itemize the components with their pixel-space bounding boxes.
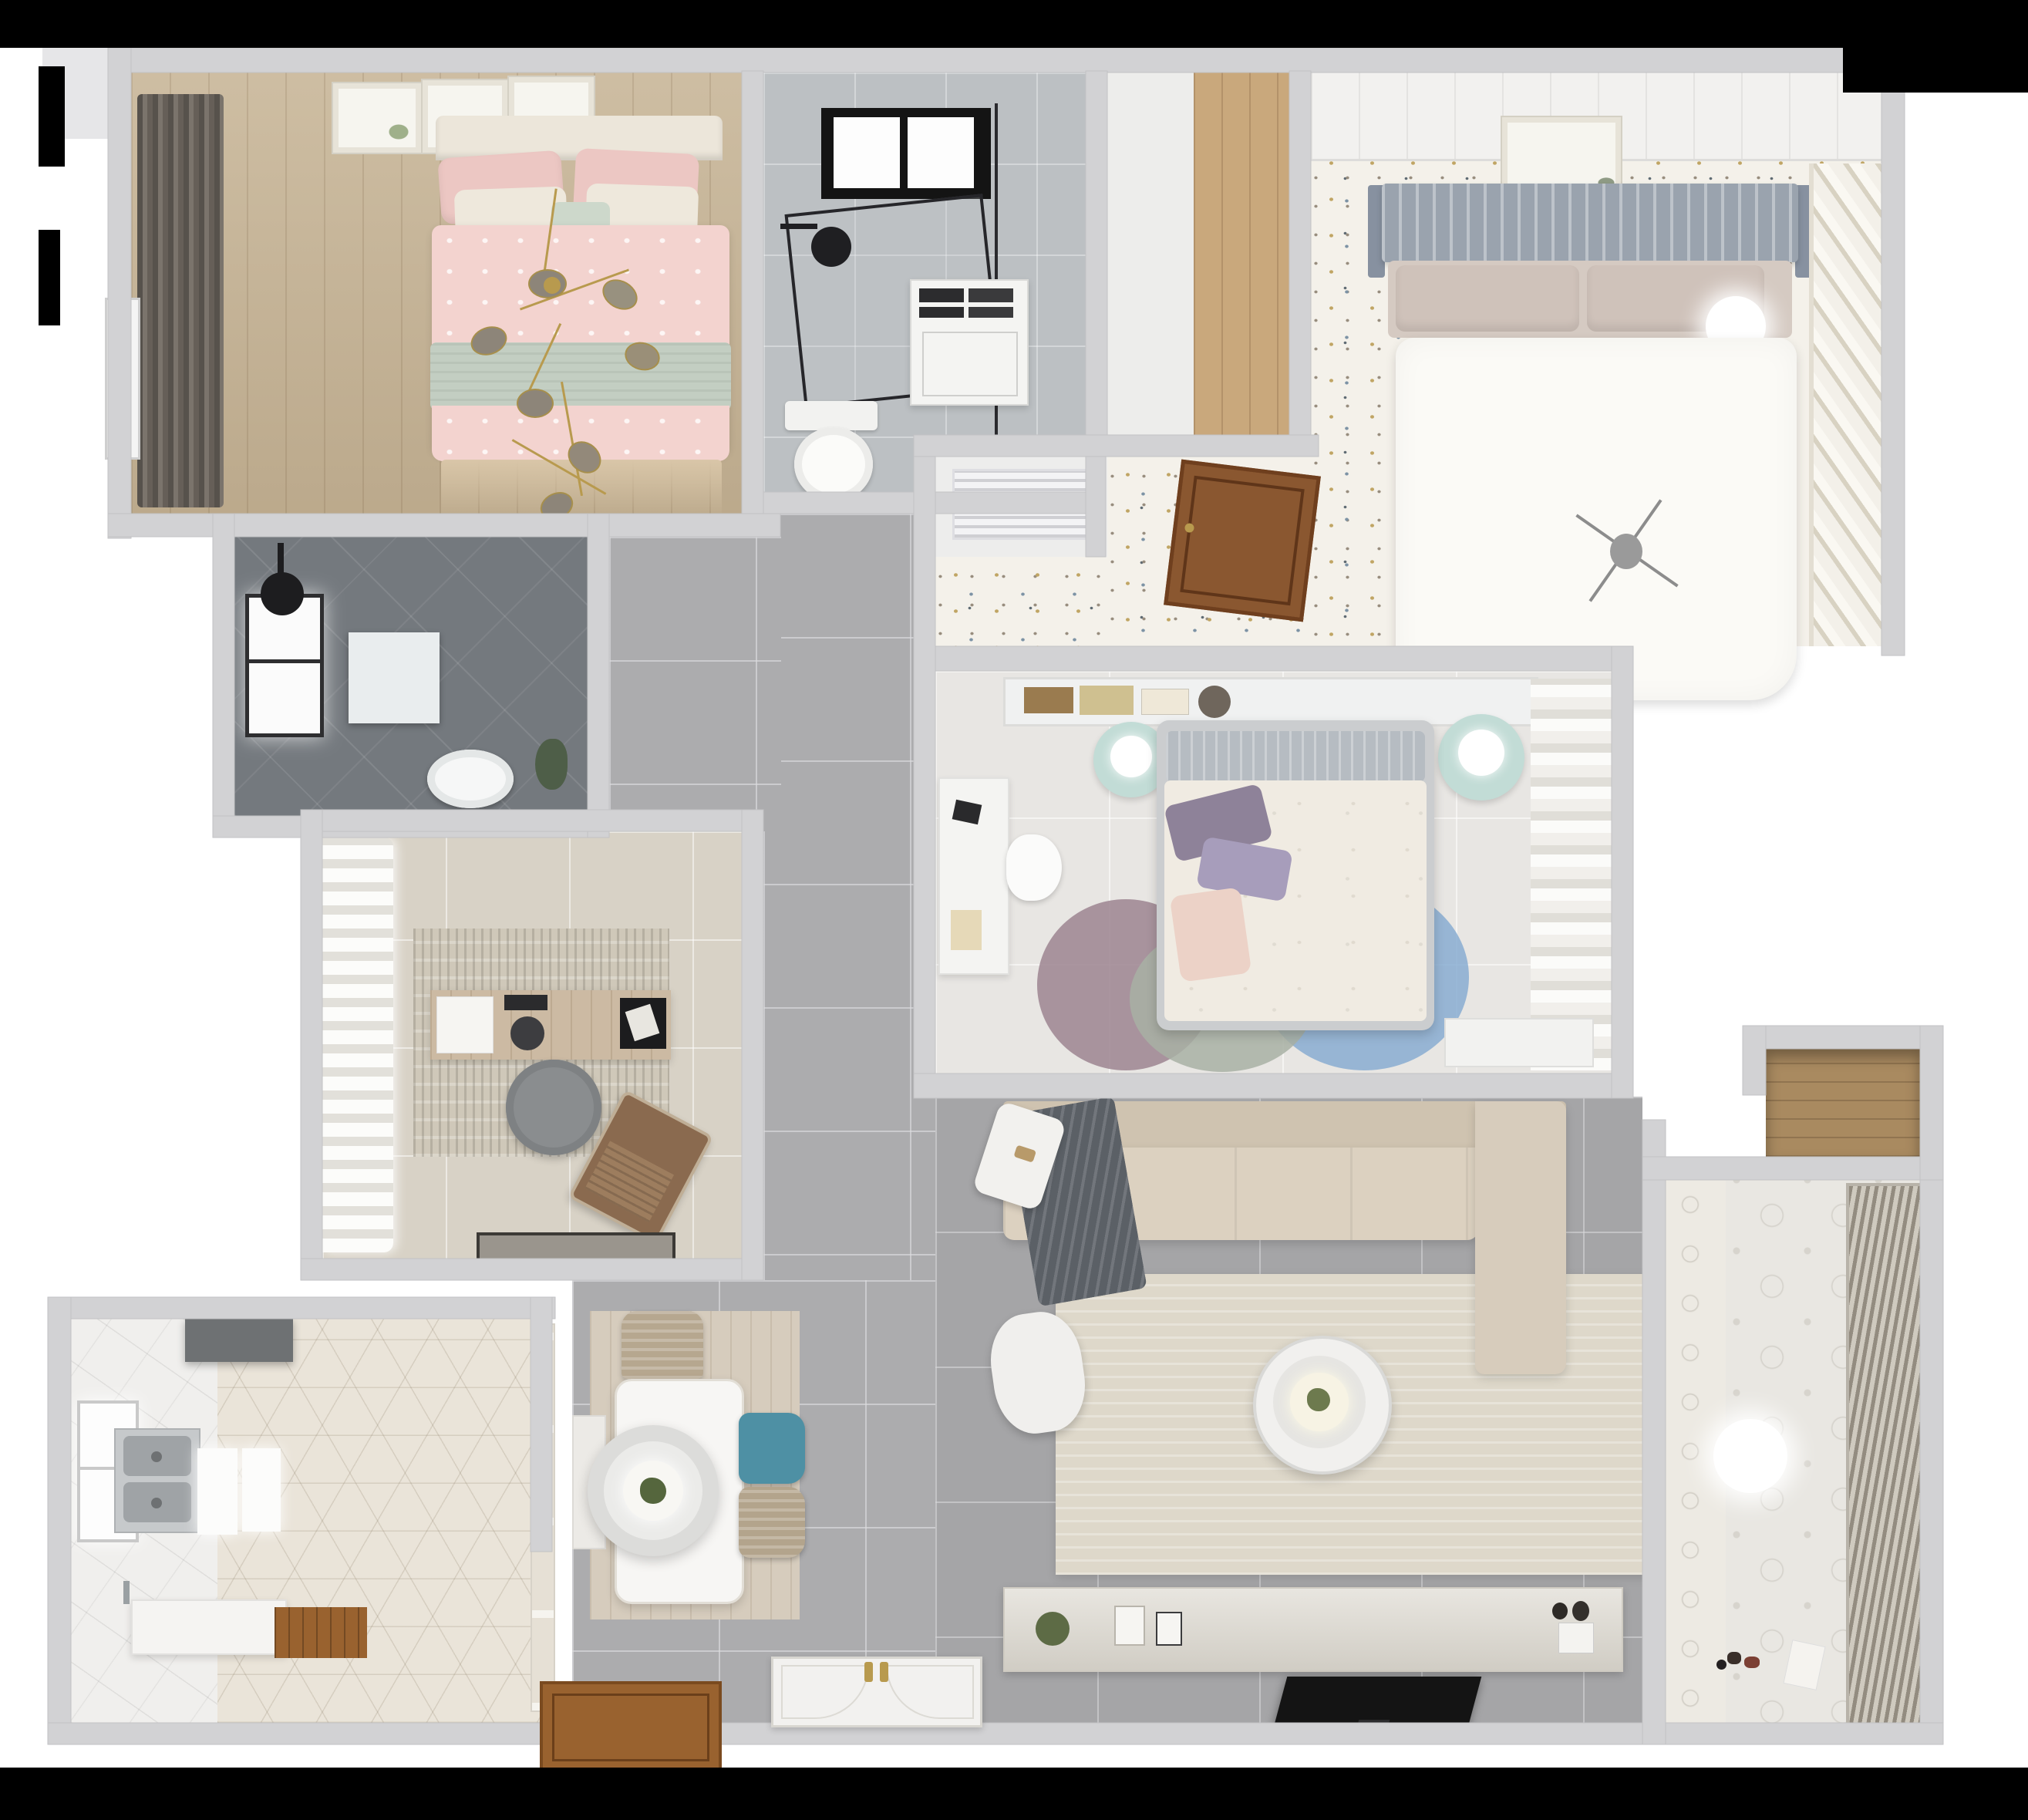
room-shower (234, 537, 588, 816)
room-bathroom-main (763, 72, 1086, 492)
nightstand-mint (1438, 714, 1524, 800)
dining-chair-beige (622, 1311, 703, 1379)
counter-white (242, 1448, 281, 1532)
toy (1744, 1657, 1760, 1668)
venetian-blinds-window (1846, 1183, 1923, 1727)
shower-tray (349, 632, 440, 723)
dining-chair-beige (739, 1487, 805, 1558)
glass-partition-door (531, 1323, 555, 1712)
entry-door-ornate (771, 1657, 982, 1727)
toilet-bowl (794, 427, 873, 501)
room-study (322, 831, 742, 1259)
toy (1716, 1660, 1726, 1670)
air-conditioner-unit (952, 469, 1096, 540)
island-counter (131, 1599, 287, 1655)
wardrobe-sheer-curtains (1531, 679, 1612, 1070)
open-door-wood (1164, 460, 1321, 622)
shower-head (261, 572, 304, 615)
washing-machine (910, 279, 1029, 406)
dining-chair-teal (739, 1413, 805, 1484)
plant (535, 739, 568, 790)
tv-console (1003, 1587, 1623, 1672)
range-hood (185, 1319, 293, 1362)
mask-band-top (0, 0, 2028, 48)
room-hallway-ac (935, 457, 1107, 557)
shower-arm (780, 224, 817, 229)
mask-band-bottom (0, 1768, 2028, 1820)
room-closet-hall (1107, 72, 1289, 441)
room-kitchen (71, 1319, 552, 1723)
double-sink (114, 1428, 200, 1533)
tv-flat (1275, 1677, 1482, 1724)
curtains (137, 94, 224, 507)
study-curtains (322, 838, 393, 1252)
chandelier-gray (1565, 489, 1689, 612)
toilet (427, 750, 514, 808)
toilet (785, 401, 878, 430)
room-living (935, 1097, 1642, 1726)
ceiling-light-round (1713, 1419, 1787, 1493)
room-master-bedroom (935, 671, 1612, 1073)
desk-white (938, 777, 1009, 975)
window (245, 594, 324, 737)
room-storage-niche (1766, 1049, 1920, 1157)
master-bed (1157, 720, 1434, 1030)
room-hallway-terrazzo2 (1107, 457, 1311, 646)
dresser (1444, 1018, 1594, 1067)
room-balcony-bath (1666, 1180, 1920, 1726)
room-bedroom-pink (131, 72, 742, 520)
room-hallway-terrazzo (935, 557, 1107, 646)
door-mat (477, 1232, 675, 1262)
counter-white (197, 1448, 237, 1535)
skylight-window (821, 108, 991, 199)
room-corridor-arm (609, 537, 781, 831)
slatted-wardrobe (1809, 163, 1886, 646)
mask-notch-left (39, 230, 60, 325)
shower-head (811, 227, 851, 267)
toy (1727, 1652, 1741, 1664)
mask-notch-left (39, 66, 65, 167)
wall-art-frame (333, 83, 421, 153)
room-bedroom-guest (1311, 72, 1881, 646)
wood-mat (275, 1607, 367, 1658)
round-office-chair (506, 1060, 601, 1155)
coffee-table-round (1253, 1336, 1392, 1475)
kitchen-doorway-wood-door (540, 1681, 722, 1774)
closet-wood-floor (1194, 72, 1289, 441)
sofa-chaise (1475, 1101, 1566, 1374)
pendant-lamp-layered (588, 1425, 719, 1556)
desk-chair (1006, 834, 1062, 901)
chandelier-gold-branch (424, 188, 679, 520)
shower-arm (278, 543, 284, 578)
exterior-door-white (105, 298, 140, 460)
bed-headboard-slats (1382, 184, 1798, 262)
paper-sheet (1783, 1640, 1825, 1690)
mask-band-top-right (1843, 48, 2028, 93)
study-desk (430, 990, 671, 1060)
floor-plan-canvas (0, 0, 2028, 1820)
headboard-shelf (1003, 677, 1538, 726)
